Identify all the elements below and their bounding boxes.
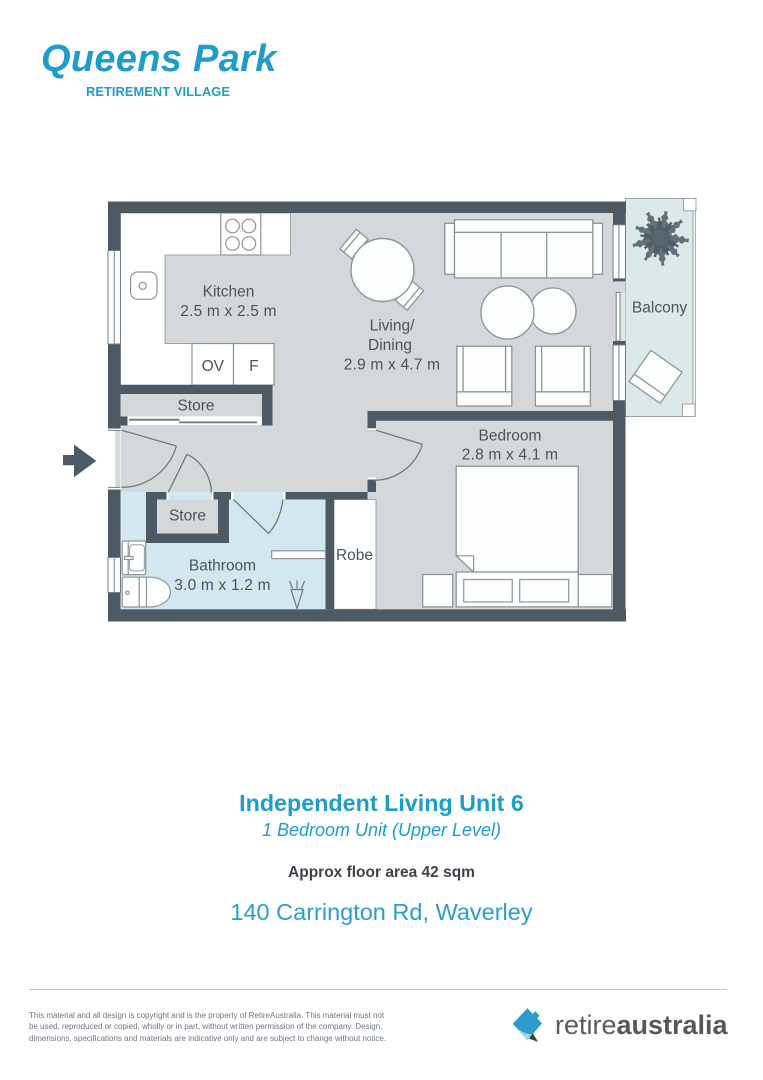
- svg-text:OV: OV: [202, 358, 225, 375]
- svg-text:Bathroom: Bathroom: [189, 558, 256, 575]
- svg-text:retireaustralia: retireaustralia: [555, 1010, 729, 1040]
- svg-text:Living/: Living/: [370, 318, 415, 335]
- svg-text:Dining: Dining: [368, 337, 412, 354]
- svg-text:Store: Store: [169, 508, 206, 525]
- svg-text:3.0 m x 1.2 m: 3.0 m x 1.2 m: [174, 577, 271, 594]
- svg-text:Kitchen: Kitchen: [203, 284, 255, 301]
- svg-text:2.8 m x 4.1 m: 2.8 m x 4.1 m: [462, 447, 559, 464]
- svg-text:Balcony: Balcony: [632, 300, 687, 317]
- svg-text:Bedroom: Bedroom: [479, 428, 542, 445]
- svg-text:F: F: [249, 358, 258, 375]
- svg-text:Robe: Robe: [336, 547, 373, 564]
- svg-text:Store: Store: [177, 398, 214, 415]
- svg-text:2.9 m x 4.7 m: 2.9 m x 4.7 m: [344, 356, 441, 373]
- svg-text:2.5 m x 2.5 m: 2.5 m x 2.5 m: [180, 303, 277, 320]
